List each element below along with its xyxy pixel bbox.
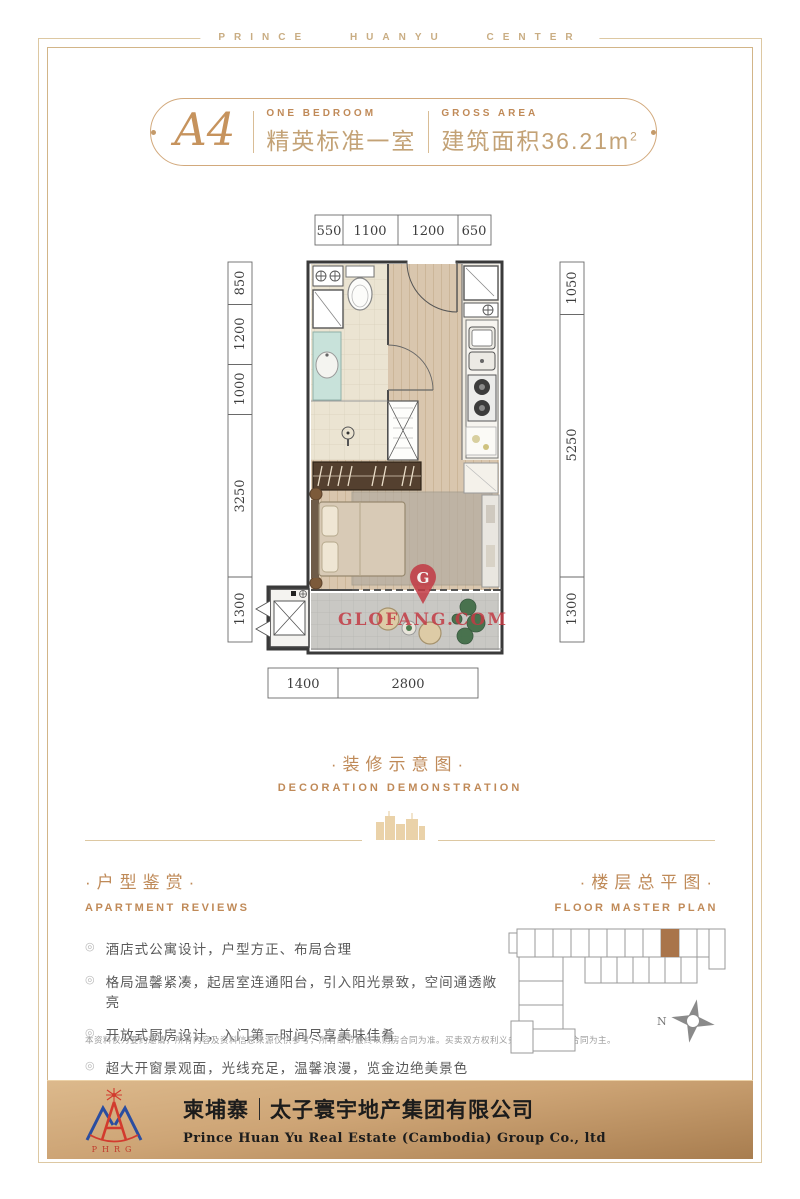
utility-shaft <box>388 401 418 460</box>
gross-area-en: GROSS AREA <box>441 108 638 119</box>
reviews-title-cn: ·户型鉴赏· <box>85 868 505 893</box>
kitchen <box>464 266 498 458</box>
dim-label: 1400 <box>286 677 319 692</box>
badge-right-dot-icon <box>651 130 656 135</box>
unit-badge: A4 ONE BEDROOM 精英标准一室 GROSS AREA 建筑面积36.… <box>150 98 657 166</box>
gross-area-cn: 建筑面积36.21m2 <box>441 122 638 156</box>
dim-label: 650 <box>462 224 487 239</box>
pillow <box>322 506 338 536</box>
bullet-text: 格局温馨紧凑，起居室连通阳台，引入阳光景致，空间通透敞亮 <box>106 971 505 1011</box>
dim-label: 5250 <box>565 428 580 461</box>
floor-master-plan-titles: ·楼层总平图· FLOOR MASTER PLAN <box>555 868 719 914</box>
floor-plan: 550 1100 1200 650 850 1200 1000 3250 130… <box>210 205 590 725</box>
unit-type-cn: 精英标准一室 <box>266 122 416 156</box>
vanity-sink <box>313 332 341 400</box>
dim-label: 1200 <box>233 317 248 350</box>
dim-label: 850 <box>233 271 248 296</box>
unit-type-block: ONE BEDROOM 精英标准一室 <box>266 108 416 156</box>
dimensions-bottom: 1400 2800 <box>268 668 478 698</box>
brand-header: PRINCE HUANYU CENTER <box>200 32 599 43</box>
headboard <box>311 500 319 578</box>
bedside-stool <box>310 577 322 589</box>
area-value: 36.21m <box>541 128 630 154</box>
watermark-letter: G <box>417 569 430 587</box>
highlighted-unit-a4 <box>661 929 679 957</box>
dimensions-left: 850 1200 1000 3250 1300 <box>228 262 252 642</box>
dimensions-right: 1050 5250 1300 <box>560 262 584 642</box>
company-region: 柬埔寨 <box>183 1094 249 1124</box>
company-name-divider <box>259 1098 260 1120</box>
fmp-title-en: FLOOR MASTER PLAN <box>555 902 719 914</box>
company-name-cn: 柬埔寨 太子寰宇地产集团有限公司 <box>183 1094 606 1124</box>
reviews-title-en: APARTMENT REVIEWS <box>85 902 505 914</box>
compass-north-label: N <box>657 1015 667 1028</box>
decoration-title-en: DECORATION DEMONSTRATION <box>0 782 800 794</box>
bullet-icon: ◎ <box>85 971 96 1011</box>
bedside-stool <box>310 488 322 500</box>
wardrobe <box>313 462 421 490</box>
fmp-title-cn: ·楼层总平图· <box>555 868 719 893</box>
area-label: 建筑面积 <box>441 128 541 154</box>
unit-code: A4 <box>168 103 241 156</box>
bullet-text: 酒店式公寓设计，户型方正、布局合理 <box>106 938 353 958</box>
dim-label: 1000 <box>233 372 248 405</box>
dim-label: 1050 <box>565 271 580 304</box>
shower-floor <box>311 401 388 460</box>
toilet-icon <box>346 266 374 310</box>
badge-left-dot-icon <box>151 130 156 135</box>
list-item: ◎格局温馨紧凑，起居室连通阳台，引入阳光景致，空间通透敞亮 <box>85 971 505 1011</box>
bullet-icon: ◎ <box>85 1057 96 1077</box>
company-logo: PHRG <box>77 1086 151 1154</box>
service-platform <box>256 589 309 647</box>
decoration-title-cn: ·装修示意图· <box>0 750 800 775</box>
brochure-page: PRINCE HUANYU CENTER A4 ONE BEDROOM 精英标准… <box>0 0 800 1199</box>
pillow <box>322 542 338 572</box>
dimensions-top: 550 1100 1200 650 <box>315 215 491 245</box>
logo-acronym: PHRG <box>92 1145 137 1154</box>
dim-label: 1200 <box>411 224 444 239</box>
stove-icon <box>468 375 496 421</box>
dim-label: 550 <box>317 224 342 239</box>
apartment-reviews-section: ·户型鉴赏· APARTMENT REVIEWS ◎酒店式公寓设计，户型方正、布… <box>85 868 505 1090</box>
list-item: ◎酒店式公寓设计，户型方正、布局合理 <box>85 938 505 958</box>
watermark-text: GLOFANG.COM <box>338 610 508 630</box>
kitchen-sink-icon <box>469 327 495 370</box>
badge-divider <box>428 111 429 153</box>
compass-icon <box>668 996 719 1047</box>
footer-bar: PHRG 柬埔寨 太子寰宇地产集团有限公司 Prince Huan Yu Rea… <box>47 1080 753 1159</box>
dim-label: 1300 <box>565 592 580 625</box>
building-skyline-icon <box>362 810 438 845</box>
gross-area-block: GROSS AREA 建筑面积36.21m2 <box>441 108 638 156</box>
bullet-text: 超大开窗景观面，光线充足，温馨浪漫，览金边绝美景色 <box>106 1057 469 1077</box>
badge-divider <box>253 111 254 153</box>
dim-label: 2800 <box>391 677 424 692</box>
company-name-en: Prince Huan Yu Real Estate (Cambodia) Gr… <box>183 1131 606 1146</box>
unit-type-en: ONE BEDROOM <box>266 108 416 119</box>
list-item: ◎超大开窗景观面，光线充足，温馨浪漫，览金边绝美景色 <box>85 1057 505 1077</box>
bullet-icon: ◎ <box>85 938 96 958</box>
area-exponent: 2 <box>630 129 639 143</box>
reviews-bullet-list: ◎酒店式公寓设计，户型方正、布局合理 ◎格局温馨紧凑，起居室连通阳台，引入阳光景… <box>85 938 505 1077</box>
dim-label: 1100 <box>353 224 386 239</box>
dim-label: 3250 <box>233 479 248 512</box>
dim-label: 1300 <box>233 592 248 625</box>
floor-master-plan-diagram: N <box>505 915 735 1060</box>
company-name: 太子寰宇地产集团有限公司 <box>270 1094 534 1124</box>
company-text-block: 柬埔寨 太子寰宇地产集团有限公司 Prince Huan Yu Real Est… <box>183 1094 606 1146</box>
